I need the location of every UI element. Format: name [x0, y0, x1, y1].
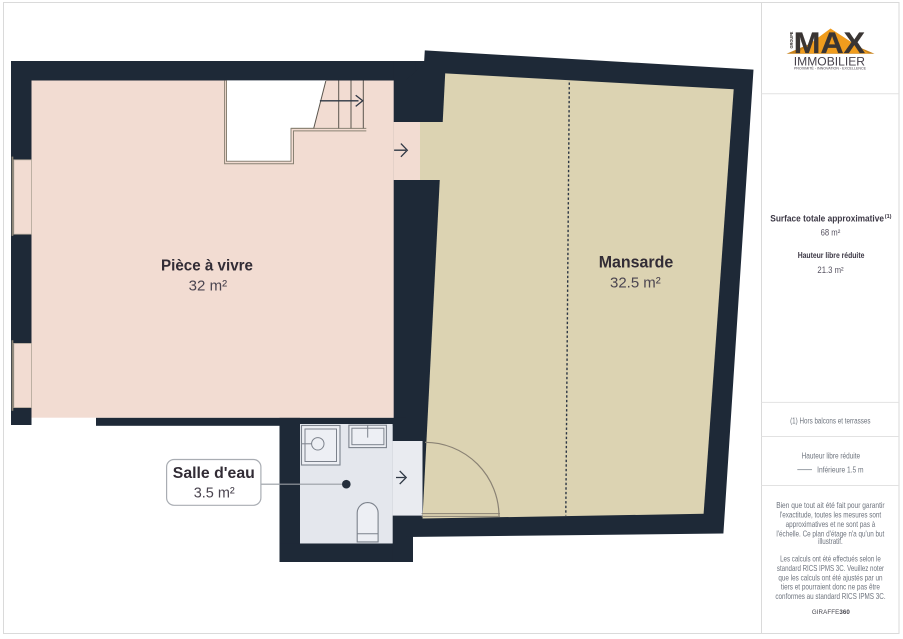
svg-text:Mansarde: Mansarde — [599, 254, 674, 272]
svg-text:Pièce à vivre: Pièce à vivre — [161, 258, 253, 275]
svg-text:standard RICS IPMS 3C. Veuille: standard RICS IPMS 3C. Veuillez noter — [777, 564, 884, 573]
svg-text:Surface totale approximative: Surface totale approximative — [770, 213, 884, 224]
svg-text:32 m²: 32 m² — [189, 278, 227, 295]
svg-text:Bien que tout ait été fait pou: Bien que tout ait été fait pour garantir — [776, 501, 885, 510]
svg-text:que les calculs ont été ajusté: que les calculs ont été ajustés par un — [778, 573, 883, 582]
svg-text:PROXIMITÉ - INNOVATION - E: PROXIMITÉ - INNOVATION - EXCELLENCE — [794, 66, 867, 71]
svg-text:21.3 m²: 21.3 m² — [817, 265, 843, 275]
svg-text:conformes au standard RICS IPM: conformes au standard RICS IPMS 3C. — [775, 592, 885, 601]
svg-text:Hauteur libre réduite: Hauteur libre réduite — [802, 451, 861, 460]
svg-text:MAX: MAX — [794, 27, 865, 60]
svg-text:(1): (1) — [885, 214, 892, 220]
svg-text:approximatives et ne sont pas: approximatives et ne sont pas à — [786, 520, 876, 529]
svg-text:GROUPE: GROUPE — [789, 32, 794, 49]
svg-text:Hauteur libre réduite: Hauteur libre réduite — [798, 250, 865, 260]
svg-text:tiers et pourraient donc ne pa: tiers et pourraient donc ne pas être — [781, 583, 880, 592]
svg-text:Inférieure 1.5 m: Inférieure 1.5 m — [817, 465, 864, 474]
svg-text:Les calculs ont été effectués: Les calculs ont été effectués selon le — [780, 555, 881, 564]
svg-text:3.5 m²: 3.5 m² — [194, 484, 235, 501]
svg-text:l'exactitude, toutes les mesur: l'exactitude, toutes les mesures sont — [780, 511, 882, 520]
svg-text:32.5 m²: 32.5 m² — [610, 275, 661, 292]
svg-text:(1) Hors balcons et terrasses: (1) Hors balcons et terrasses — [790, 417, 870, 426]
svg-text:Salle d'eau: Salle d'eau — [173, 465, 255, 482]
svg-text:68 m²: 68 m² — [821, 228, 841, 238]
svg-text:GIRAFFE360: GIRAFFE360 — [812, 609, 851, 616]
svg-text:illustratif.: illustratif. — [818, 537, 843, 546]
